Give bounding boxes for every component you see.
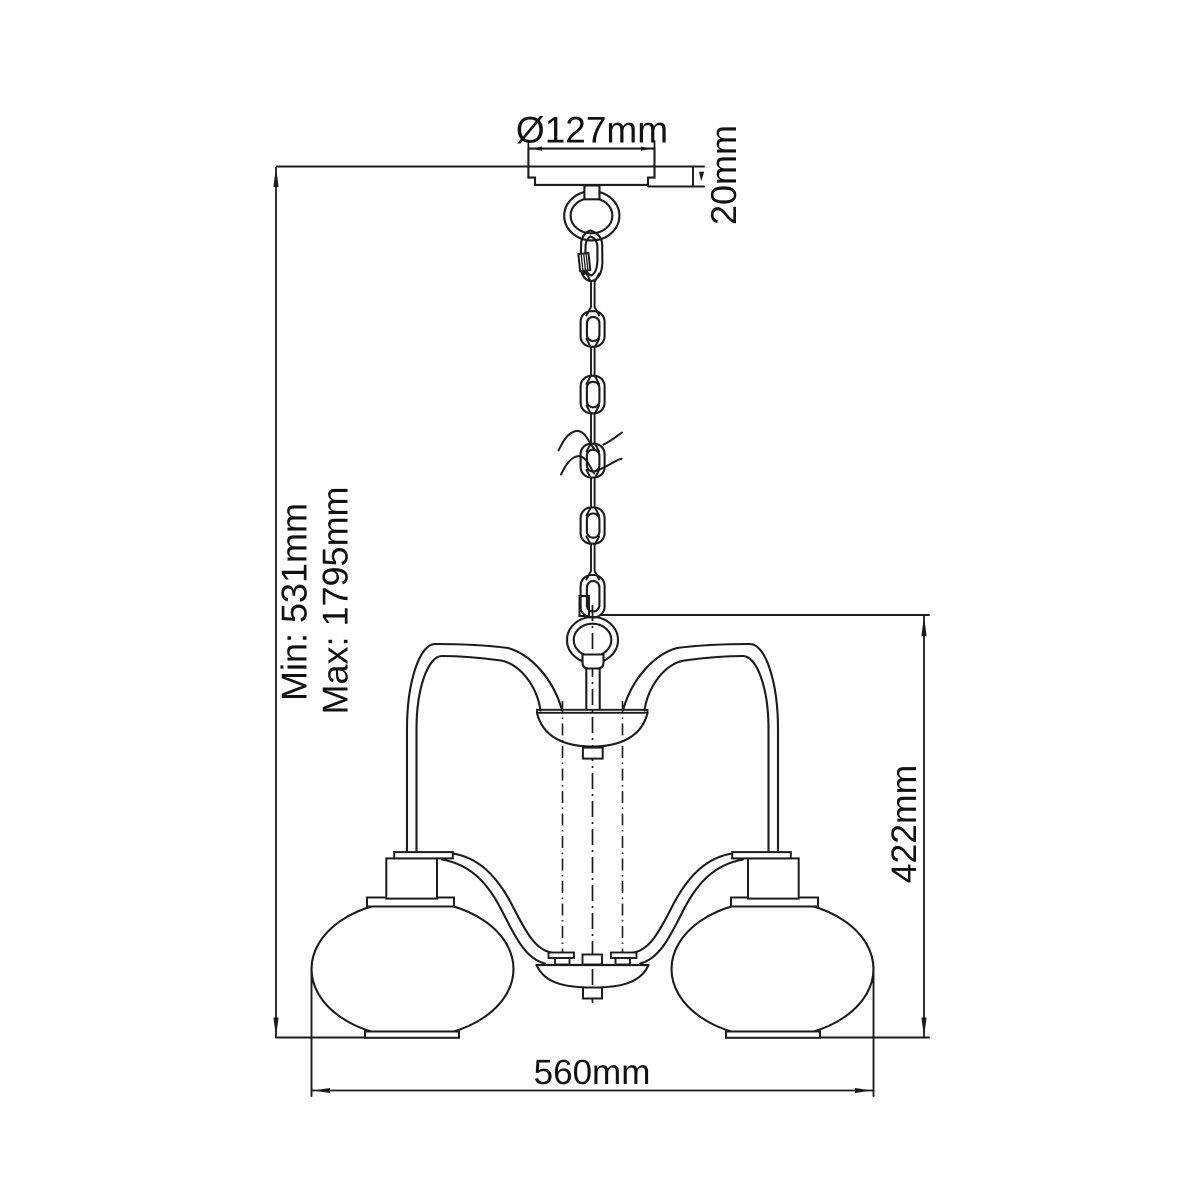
svg-text:422mm: 422mm — [884, 765, 924, 883]
svg-text:Min: 531mm: Min: 531mm — [274, 503, 315, 701]
svg-text:20mm: 20mm — [703, 125, 744, 225]
svg-text:560mm: 560mm — [534, 1053, 651, 1092]
svg-text:Max: 1795mm: Max: 1795mm — [315, 486, 356, 714]
svg-text:Ø127mm: Ø127mm — [516, 110, 668, 151]
